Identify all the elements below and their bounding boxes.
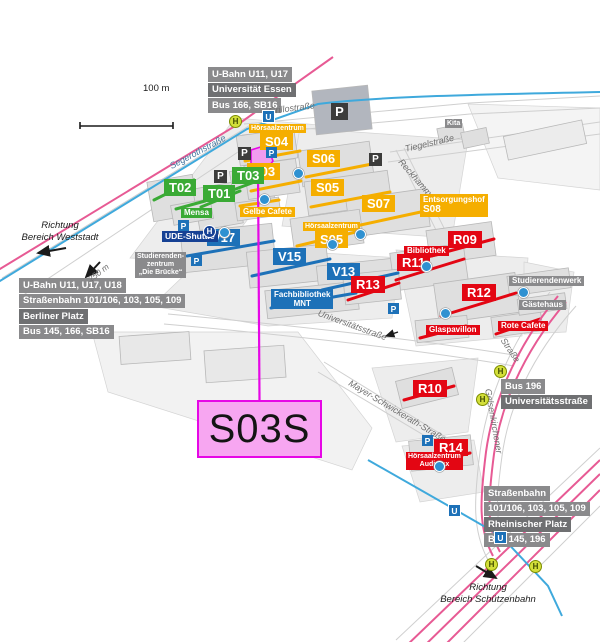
transit-box-left: U-Bahn U11, U17, U18 Straßenbahn 101/106… [19, 278, 185, 340]
fachbibliothek-line1: Fachbibliothek [274, 290, 330, 299]
ubahn-icon[interactable]: U [494, 531, 507, 544]
scale-bar [80, 122, 173, 129]
accessibility-icon [293, 168, 304, 179]
building-label-s08-line2: S08 [423, 204, 485, 216]
transit-line: Berliner Platz [19, 309, 88, 324]
ubahn-icon[interactable]: U [262, 110, 275, 123]
accessibility-icon [434, 461, 445, 472]
direction-south: Richtung Bereich Schützenbahn [428, 582, 548, 606]
scale-label: 100 m [143, 83, 169, 94]
shuttle-stop-icon[interactable]: H [203, 225, 216, 238]
parking-icon[interactable]: P [238, 147, 251, 160]
facility-label-gelbe-cafete[interactable]: Gelbe Cafete [240, 207, 295, 217]
tram-stop-icon[interactable]: H [229, 115, 242, 128]
direction-west-line2: Bereich Weststadt [10, 232, 110, 244]
parking-icon-blue[interactable]: P [266, 147, 277, 158]
building-label-r09[interactable]: R09 [448, 231, 482, 248]
building-label-s08-line1: Entsorgungshof [423, 195, 485, 204]
accessibility-icon [327, 239, 338, 250]
facility-label-mensa[interactable]: Mensa [181, 208, 212, 218]
facility-label-fachbibliothek[interactable]: Fachbibliothek MNT [271, 289, 333, 309]
studierendenzentrum-line3: „Die Brücke“ [137, 269, 184, 277]
building-label-r12[interactable]: R12 [462, 284, 496, 301]
building-label-t03[interactable]: T03 [232, 167, 264, 184]
tram-stop-icon[interactable]: H [494, 365, 507, 378]
accessibility-icon [440, 308, 451, 319]
facility-label-kita[interactable]: Kita [445, 119, 462, 128]
studierendenzentrum-line2: zentrum [137, 261, 184, 269]
transit-line: Straßenbahn 101/106, 103, 105, 109 [19, 294, 185, 309]
transit-line: Straßenbahn [484, 486, 550, 501]
parking-icon[interactable]: P [369, 153, 382, 166]
facility-label-gaestehaus[interactable]: Gästehaus [519, 300, 566, 310]
parking-icon-blue[interactable]: P [388, 303, 399, 314]
parking-icon[interactable]: P [331, 103, 348, 120]
building-label-v15[interactable]: V15 [273, 248, 306, 265]
transit-line: Bus 145, 166, SB16 [19, 325, 114, 340]
transit-line: Rheinischer Platz [484, 517, 571, 532]
facility-label-glaspavillon[interactable]: Glaspavillon [426, 325, 480, 335]
transit-box-right: Bus 196 Universitätsstraße [501, 379, 592, 410]
building-label-s05[interactable]: S05 [311, 179, 344, 196]
building-label-hoersaalzentrum-s04[interactable]: Hörsaalzentrum [249, 124, 306, 133]
direction-south-line2: Bereich Schützenbahn [428, 594, 548, 606]
facility-label-studierendenzentrum[interactable]: Studierenden- zentrum „Die Brücke“ [135, 252, 186, 278]
building-label-t01[interactable]: T01 [203, 185, 235, 202]
building-label-hoersaalzentrum-s05[interactable]: Hörsaalzentrum [303, 222, 360, 231]
accessibility-icon [259, 194, 270, 205]
parking-icon-blue[interactable]: P [422, 435, 433, 446]
highlight-callout-s03s[interactable]: S03S [197, 400, 322, 458]
facility-label-studierendenwerk[interactable]: Studierendenwerk [509, 276, 584, 286]
direction-west: Richtung Bereich Weststadt [10, 220, 110, 244]
building-label-r10[interactable]: R10 [413, 380, 447, 397]
campus-map: 100 m U-Bahn U11, U17 Universität Essen … [0, 0, 600, 642]
accessibility-icon [219, 227, 230, 238]
direction-south-line1: Richtung [428, 582, 548, 594]
audimax-line1: Hörsaalzentrum [408, 453, 461, 461]
accessibility-icon [355, 229, 366, 240]
parking-icon-blue[interactable]: P [191, 255, 202, 266]
transit-line: Universitätsstraße [501, 395, 592, 410]
building-label-s06[interactable]: S06 [307, 150, 340, 167]
transit-line: 101/106, 103, 105, 109 [484, 502, 590, 517]
transit-line: Universität Essen [208, 83, 296, 98]
parking-icon[interactable]: P [214, 170, 227, 183]
fachbibliothek-line2: MNT [274, 299, 330, 308]
building-label-r13[interactable]: R13 [351, 276, 385, 293]
tram-stop-icon[interactable]: H [529, 560, 542, 573]
tram-stop-icon[interactable]: H [476, 393, 489, 406]
ubahn-icon[interactable]: U [448, 504, 461, 517]
parking-icon-blue[interactable]: P [178, 220, 189, 231]
direction-west-line1: Richtung [10, 220, 110, 232]
transit-line: U-Bahn U11, U17, U18 [19, 278, 126, 293]
facility-label-rote-cafete[interactable]: Rote Cafete [498, 321, 548, 331]
accessibility-icon [518, 287, 529, 298]
building-label-t02[interactable]: T02 [164, 179, 196, 196]
building-label-s08[interactable]: Entsorgungshof S08 [420, 194, 488, 217]
accessibility-icon [421, 261, 432, 272]
transit-line: Bus 196 [501, 379, 545, 394]
transit-line: U-Bahn U11, U17 [208, 67, 292, 82]
tram-stop-icon[interactable]: H [485, 558, 498, 571]
studierendenzentrum-line1: Studierenden- [137, 253, 184, 261]
building-label-s07[interactable]: S07 [362, 195, 395, 212]
